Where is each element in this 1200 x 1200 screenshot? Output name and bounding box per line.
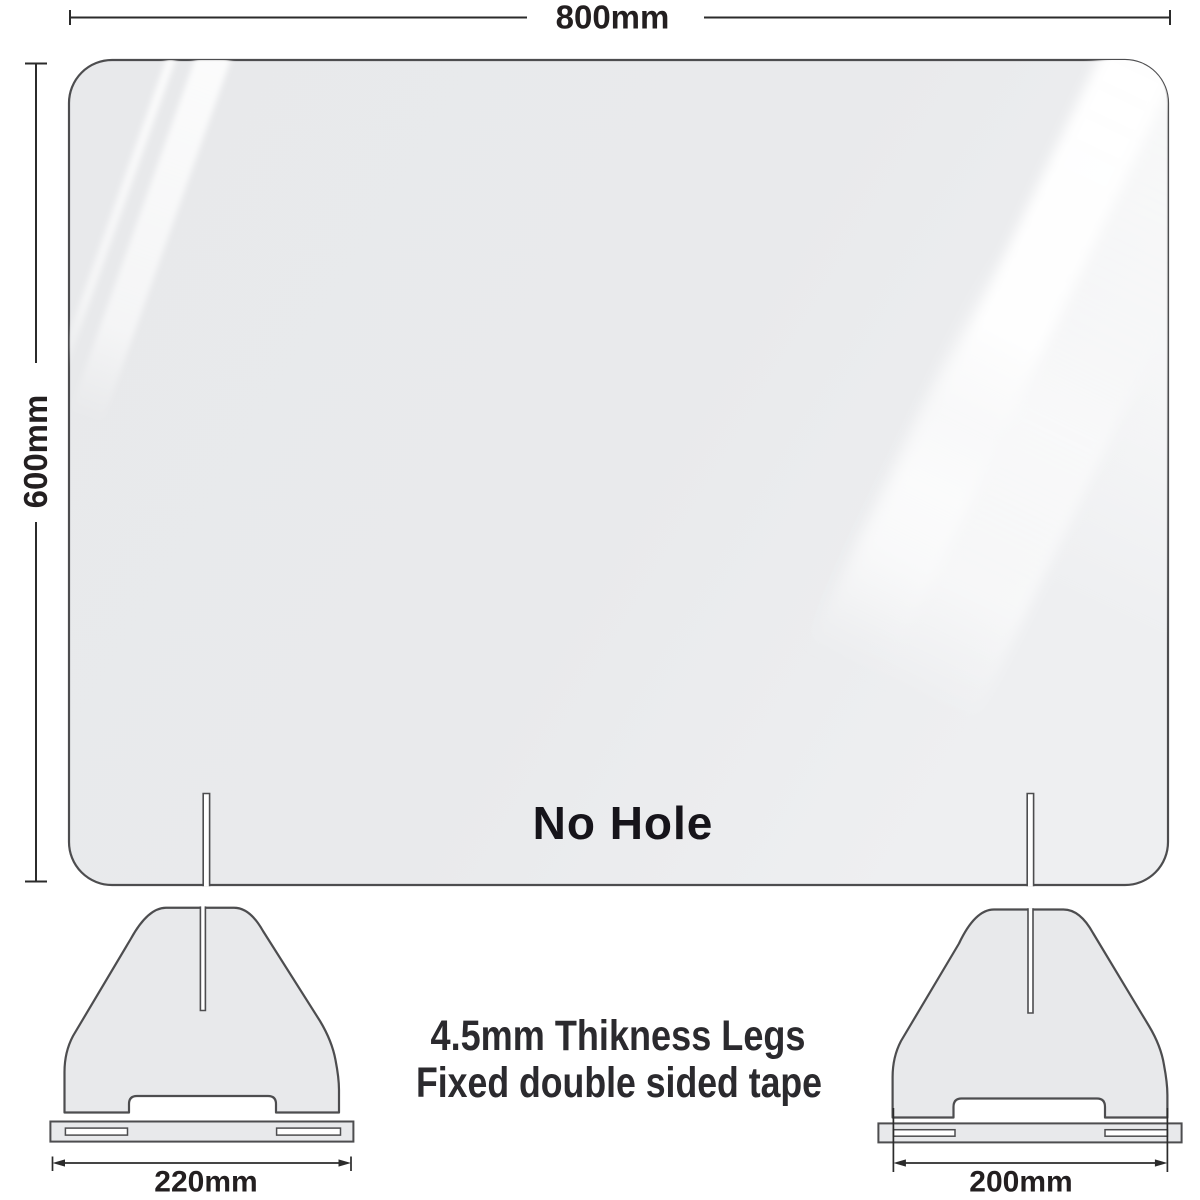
svg-text:200mm: 200mm [969,1166,1072,1199]
svg-text:No Hole: No Hole [533,797,714,849]
svg-text:220mm: 220mm [154,1166,257,1199]
svg-text:4.5mm Thikness Legs: 4.5mm Thikness Legs [431,1012,806,1060]
svg-text:Fixed double sided tape: Fixed double sided tape [416,1059,822,1107]
svg-text:600mm: 600mm [17,395,54,509]
svg-text:800mm: 800mm [556,0,670,36]
